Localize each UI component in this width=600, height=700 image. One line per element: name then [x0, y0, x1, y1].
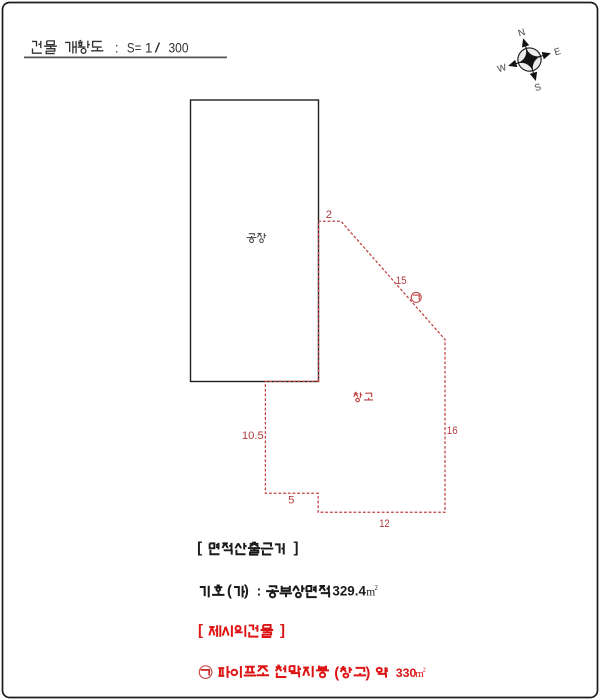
svg-text:(: ( — [334, 665, 339, 682]
svg-text:300: 300 — [169, 40, 189, 55]
svg-text:5: 5 — [288, 494, 294, 506]
svg-text:12: 12 — [379, 518, 389, 530]
svg-text:2: 2 — [423, 667, 426, 674]
svg-text:[: [ — [197, 540, 202, 557]
svg-text::: : — [257, 582, 262, 598]
svg-text:15: 15 — [396, 275, 407, 287]
svg-text::: : — [115, 40, 119, 55]
svg-text:]: ] — [294, 540, 299, 557]
svg-text:): ) — [365, 665, 370, 682]
svg-text:): ) — [244, 582, 249, 599]
svg-text:2: 2 — [374, 584, 378, 592]
svg-text:330: 330 — [396, 666, 417, 680]
svg-text:]: ] — [280, 622, 285, 639]
svg-text:329.4: 329.4 — [332, 583, 366, 598]
svg-text:16: 16 — [447, 425, 458, 437]
svg-text:/: / — [155, 40, 161, 55]
svg-text:S=: S= — [127, 40, 141, 55]
svg-text:10.5: 10.5 — [242, 430, 264, 442]
svg-text:(: ( — [227, 582, 232, 599]
svg-text:1: 1 — [145, 40, 153, 55]
svg-text:[: [ — [198, 622, 203, 639]
svg-text:2: 2 — [326, 209, 332, 221]
